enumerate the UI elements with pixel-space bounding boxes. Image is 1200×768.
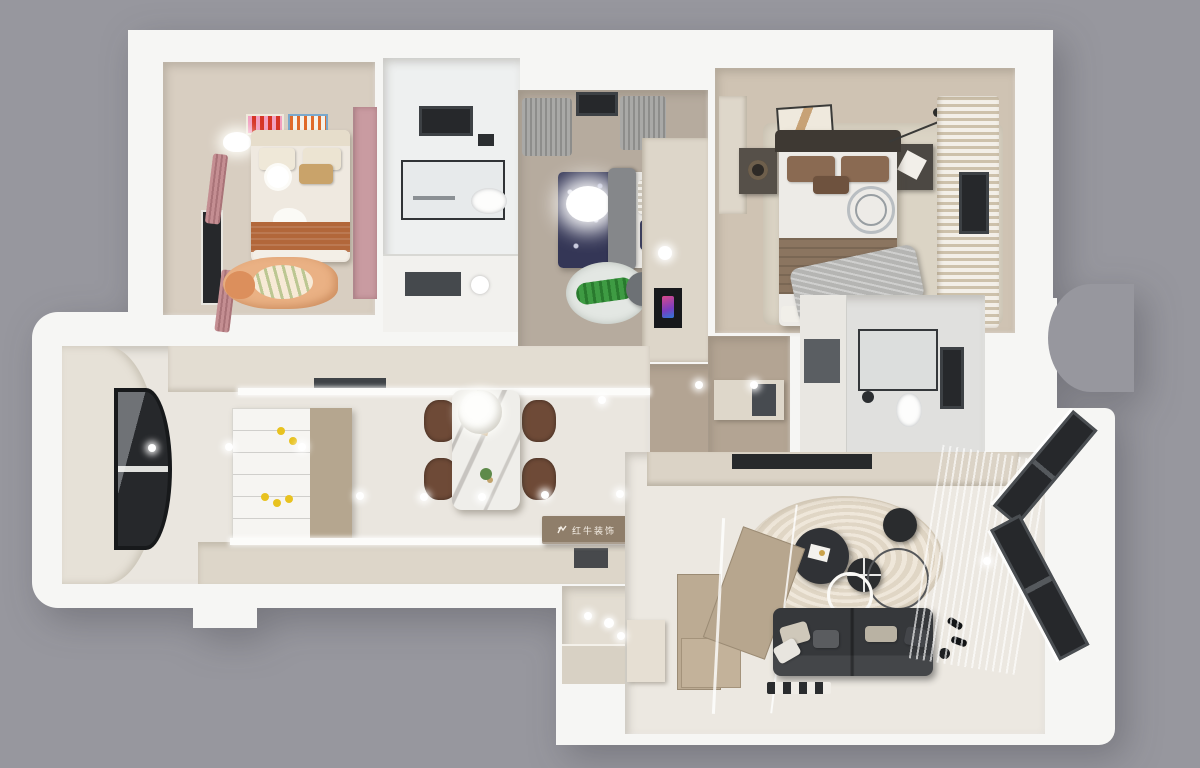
hall-cabinet (714, 380, 784, 420)
bath2-vanity-dark (804, 339, 840, 383)
lemon-4 (273, 499, 281, 507)
table-lamp (748, 160, 768, 180)
lemon-5 (285, 495, 293, 503)
sofa-pillow-gray (813, 630, 839, 648)
desk-lamp (658, 246, 672, 260)
boys-gray-blanket (608, 168, 636, 270)
master-headboard (775, 130, 901, 152)
lemon-3 (261, 493, 269, 501)
nightstand-left (739, 148, 777, 194)
dining-chair-4 (522, 458, 556, 500)
ceiling-spot (420, 493, 428, 501)
stair-cabinet (627, 620, 665, 682)
master-lumbar (813, 176, 849, 194)
ceiling-spot (298, 443, 306, 451)
kids-headboard (251, 130, 350, 146)
lemon-2 (289, 437, 297, 445)
ceiling-spot (750, 381, 758, 389)
room-living (625, 452, 1045, 734)
wall-curve-notch (1048, 284, 1134, 392)
lemon-1 (277, 427, 285, 435)
bath1-vanity (383, 254, 520, 332)
desk-unit (642, 138, 708, 362)
fox-rug-head (225, 271, 255, 299)
upper-counter-edge (238, 388, 650, 395)
ceiling-spot (356, 492, 364, 500)
room-boys-bedroom (518, 90, 708, 362)
apartment-plan: 红牛装饰 (0, 0, 1200, 768)
tv-panel (732, 454, 872, 469)
fox-rug-belly (253, 265, 313, 299)
bath2-shower-head (862, 391, 874, 403)
boys-curtain-left (522, 98, 572, 156)
entrance-vase (604, 618, 614, 628)
boys-window (576, 92, 618, 116)
sofa (773, 608, 933, 676)
fox-rug (223, 257, 338, 309)
kitchen-island (232, 408, 352, 540)
bath1-toilet (471, 188, 507, 214)
curved-bay-window (114, 388, 172, 550)
watermark-plaque: 红牛装饰 (542, 516, 630, 544)
ceiling-spot (617, 632, 625, 640)
ceiling-spot (695, 381, 703, 389)
fridge-open (232, 408, 312, 542)
ceiling-spot (478, 493, 486, 501)
bath2-window (940, 347, 964, 409)
ceiling-spot (616, 490, 624, 498)
tv-remote-rug (767, 682, 831, 694)
napkin-decor (897, 150, 927, 180)
sink-appliance-dark (574, 548, 608, 568)
bull-logo-icon (556, 524, 568, 536)
coffee-table-small (883, 508, 917, 542)
metal-ring-inner (855, 194, 887, 226)
cloud-wall-lamp (223, 132, 251, 152)
room-bathroom-1 (383, 58, 520, 330)
master-window (959, 172, 989, 234)
bath1-towel-rail (413, 196, 455, 200)
bath2-shower-glass (858, 329, 938, 391)
desk-screen (654, 288, 682, 328)
upper-counter (168, 346, 650, 392)
ceiling-spot (225, 443, 233, 451)
lower-counter (198, 542, 650, 584)
floor-plan-canvas: 红牛装饰 (0, 0, 1200, 768)
kids-lumbar-pillow (299, 164, 333, 184)
table-plant (480, 468, 492, 480)
bath2-vanity (800, 295, 847, 460)
pink-curtain-upper (205, 153, 228, 224)
cloud-night-light (566, 186, 610, 222)
island-side-panel (310, 408, 352, 540)
phone-on-desk (662, 296, 674, 318)
kids-orange-blanket (251, 222, 350, 252)
room-master-bedroom (715, 68, 1015, 333)
bath1-vanity-counter (405, 272, 461, 296)
ceiling-spot (598, 396, 606, 404)
bath1-skylight (419, 106, 473, 136)
pendant-light (458, 390, 502, 434)
watermark-text: 红牛装饰 (572, 524, 616, 537)
ceiling-spot (148, 444, 156, 452)
flower-pillow (267, 166, 289, 188)
bath1-sink (471, 276, 489, 294)
wall-footprint-jog (193, 598, 257, 628)
kids-bed (251, 130, 350, 262)
ceiling-spot (584, 612, 592, 620)
ceiling-spot (541, 491, 549, 499)
room-bathroom-2 (800, 295, 985, 460)
gold-cup (819, 550, 825, 556)
hall-cabinet-door-dark (752, 384, 776, 416)
range-hood (314, 378, 386, 388)
pink-wardrobe (353, 107, 377, 299)
room-kids-bedroom (163, 62, 375, 315)
room-kitchen-dining: 红牛装饰 (62, 346, 650, 584)
bath1-shower-head (478, 134, 494, 146)
ceiling-spot (983, 557, 991, 565)
bath2-toilet (896, 393, 922, 427)
dining-chair-3 (522, 400, 556, 442)
sofa-pillow-beige (865, 626, 897, 642)
